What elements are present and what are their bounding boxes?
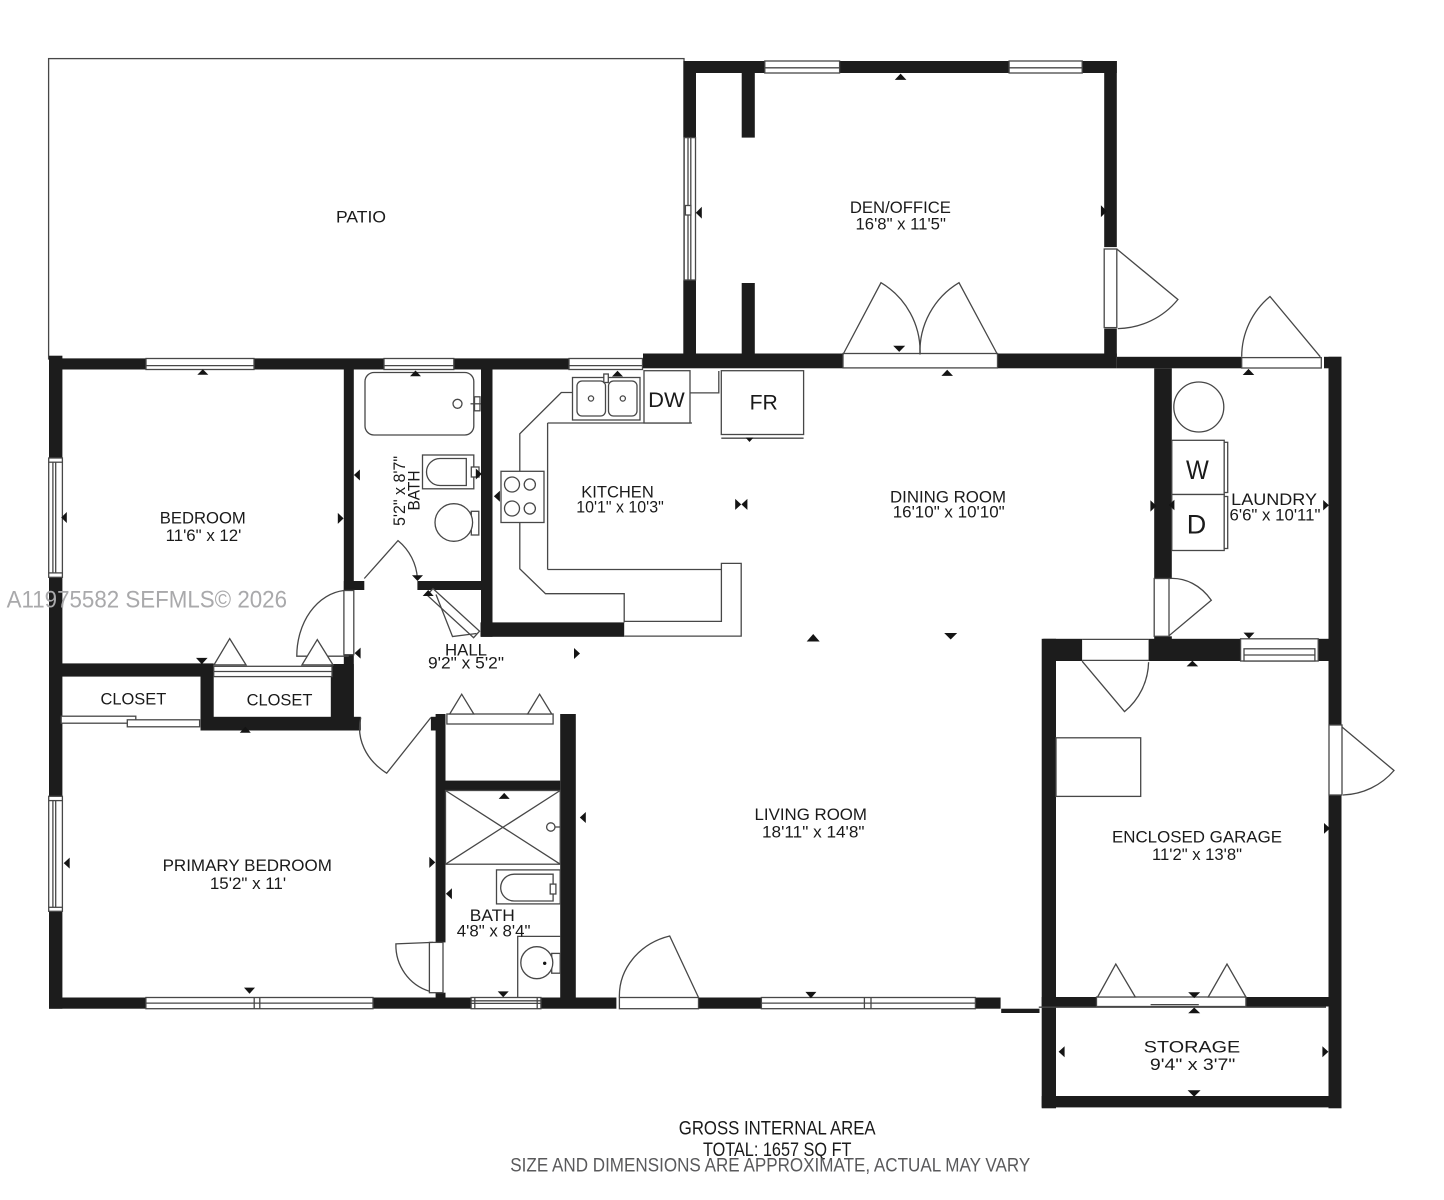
svg-text:CLOSET: CLOSET bbox=[101, 690, 167, 709]
svg-text:6'6" x 10'11": 6'6" x 10'11" bbox=[1230, 506, 1321, 525]
svg-text:FR: FR bbox=[750, 392, 778, 415]
svg-text:GROSS INTERNAL AREA: GROSS INTERNAL AREA bbox=[679, 1117, 876, 1139]
svg-text:BEDROOM: BEDROOM bbox=[160, 509, 246, 528]
svg-text:ENCLOSED GARAGE: ENCLOSED GARAGE bbox=[1112, 828, 1282, 847]
svg-text:A11975582 SEFMLS© 2026: A11975582 SEFMLS© 2026 bbox=[7, 587, 287, 614]
svg-text:16'8" x 11'5": 16'8" x 11'5" bbox=[856, 215, 946, 234]
svg-text:W: W bbox=[1186, 455, 1209, 485]
svg-text:SIZE AND DIMENSIONS ARE APPROX: SIZE AND DIMENSIONS ARE APPROXIMATE, ACT… bbox=[510, 1154, 1030, 1176]
svg-text:11'6" x 12': 11'6" x 12' bbox=[166, 526, 242, 545]
svg-text:CLOSET: CLOSET bbox=[247, 691, 313, 710]
svg-text:4'8" x 8'4": 4'8" x 8'4" bbox=[457, 921, 531, 940]
svg-text:D: D bbox=[1187, 510, 1207, 540]
svg-text:10'1" x 10'3": 10'1" x 10'3" bbox=[576, 498, 664, 517]
svg-text:11'2" x 13'8": 11'2" x 13'8" bbox=[1152, 845, 1242, 864]
svg-text:15'2" x 11': 15'2" x 11' bbox=[210, 874, 286, 893]
svg-text:18'11" x 14'8": 18'11" x 14'8" bbox=[762, 823, 865, 842]
svg-text:5'2" x 8'7": 5'2" x 8'7" bbox=[390, 456, 409, 526]
svg-text:PRIMARY BEDROOM: PRIMARY BEDROOM bbox=[163, 856, 332, 875]
svg-text:16'10" x 10'10": 16'10" x 10'10" bbox=[893, 502, 1005, 521]
svg-text:LIVING ROOM: LIVING ROOM bbox=[755, 805, 868, 824]
svg-text:PATIO: PATIO bbox=[336, 208, 386, 227]
svg-text:DW: DW bbox=[648, 389, 685, 412]
svg-text:9'4" x 3'7": 9'4" x 3'7" bbox=[1150, 1055, 1235, 1074]
svg-text:9'2" x 5'2": 9'2" x 5'2" bbox=[428, 653, 504, 672]
svg-text:STORAGE: STORAGE bbox=[1144, 1038, 1240, 1057]
